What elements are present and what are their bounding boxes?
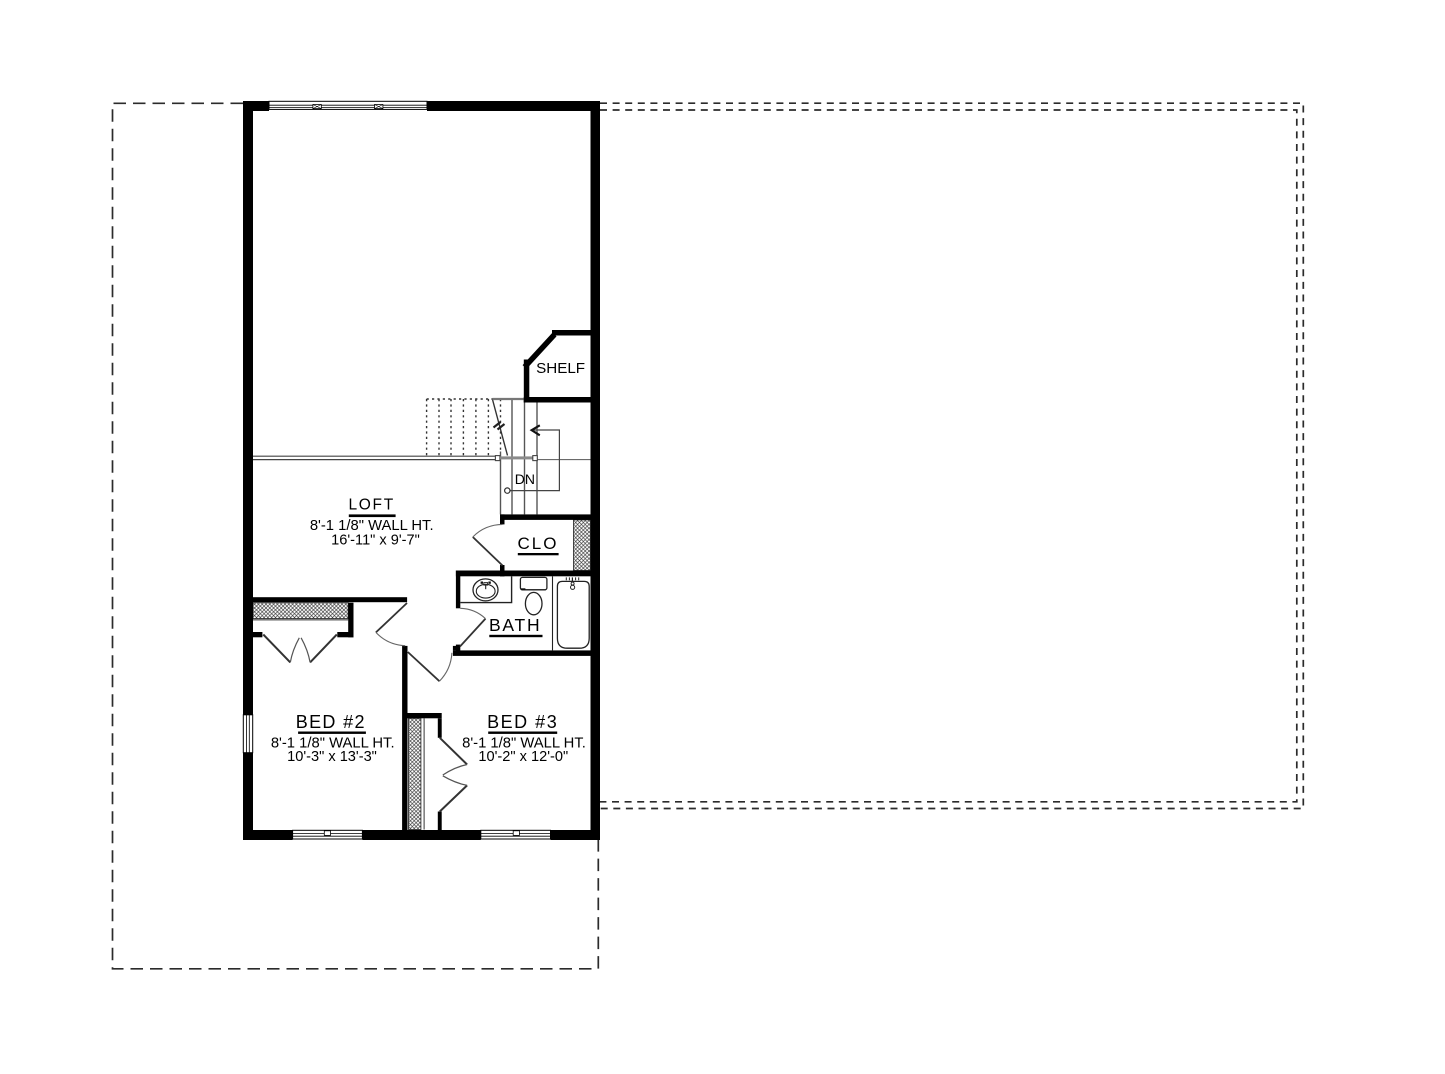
svg-text:10'-2" x 12'-0": 10'-2" x 12'-0" [478,749,568,765]
svg-text:BED #2: BED #2 [296,712,366,732]
svg-text:LOFT: LOFT [348,497,394,514]
svg-text:BED #3: BED #3 [487,712,558,732]
svg-text:10'-3" x 13'-3": 10'-3" x 13'-3" [287,749,377,765]
svg-text:16'-11" x 9'-7": 16'-11" x 9'-7" [331,533,420,549]
svg-text:DN: DN [515,471,535,487]
svg-text:BATH: BATH [489,615,541,635]
svg-text:CLO: CLO [518,534,559,553]
svg-text:SHELF: SHELF [536,360,585,377]
